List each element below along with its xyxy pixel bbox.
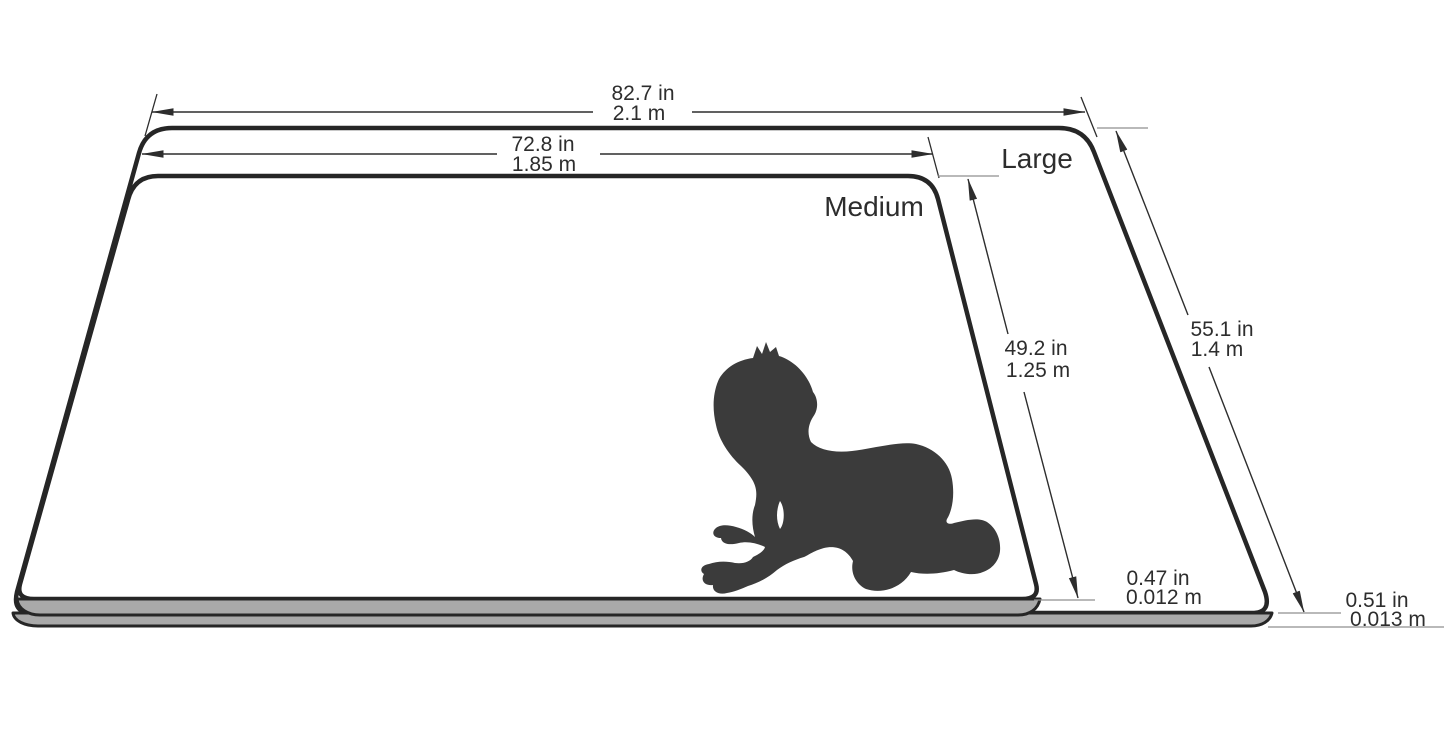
large-width-label-m: 2.1 m — [613, 102, 666, 125]
mat-size-diagram: 82.7 in 2.1 m 72.8 in 1.85 m 49.2 in 1.2… — [0, 0, 1445, 743]
medium-thickness-label-m: 0.012 m — [1126, 586, 1202, 609]
medium-depth-label-in: 49.2 in — [1004, 337, 1067, 360]
large-thickness-dimension: 0.51 in 0.013 m — [1268, 589, 1444, 631]
large-thickness-label-m: 0.013 m — [1350, 608, 1426, 631]
diagram-svg: 82.7 in 2.1 m 72.8 in 1.85 m 49.2 in 1.2… — [0, 0, 1445, 743]
medium-depth-label-m: 1.25 m — [1006, 359, 1070, 382]
large-width-ext-tick-right — [1081, 97, 1097, 137]
large-depth-label-m: 1.4 m — [1191, 338, 1244, 361]
medium-mat-edge — [17, 599, 1040, 615]
medium-mat-name-label: Medium — [824, 191, 924, 222]
medium-width-label-m: 1.85 m — [512, 153, 576, 176]
large-mat-name-label: Large — [1001, 143, 1073, 174]
